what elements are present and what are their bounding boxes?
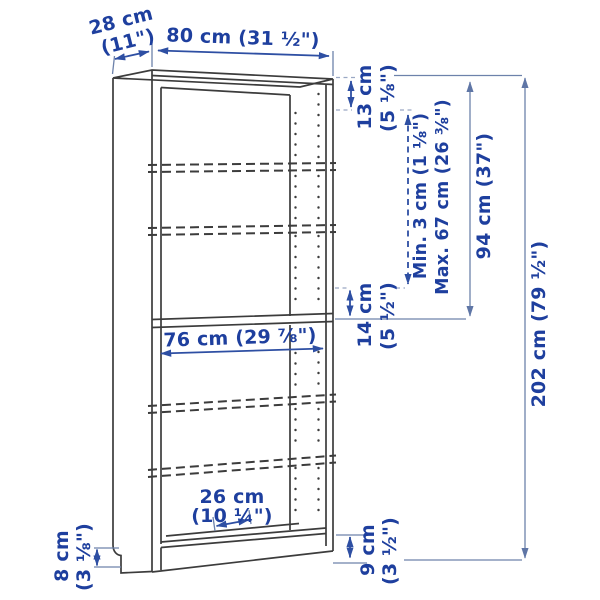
upper-section-label: 94 cm (37") xyxy=(473,133,495,260)
bookcase-base xyxy=(161,524,326,571)
base-side-label-cm: 8 cm xyxy=(51,530,73,582)
mid-gap-label-cm: 14 cm xyxy=(354,282,376,347)
top-gap-label-cm: 13 cm xyxy=(354,64,376,129)
interior-back-top-edge xyxy=(161,88,290,96)
shelf-adjustable-1 xyxy=(148,163,336,172)
diagram-canvas: 28 cm (11") 80 cm (31 ½") 13 cm (5 ⅛") M… xyxy=(0,0,600,600)
base-front-label-cm: 9 cm xyxy=(357,524,379,576)
base-side-leaders xyxy=(94,548,121,567)
bookcase-bottom-edge xyxy=(152,551,333,572)
top-gap-label-in: (5 ⅛") xyxy=(377,64,399,132)
shelf-adjustable-2 xyxy=(148,225,336,235)
bookcase-side-panel xyxy=(113,78,152,573)
shelf-adjustable-4 xyxy=(148,456,336,478)
shelf-adjustable-3 xyxy=(148,395,336,414)
shelf-max-label: Max. 67 cm (26 ⅜") xyxy=(433,99,453,295)
base-side-label-in: (3 ⅛") xyxy=(73,523,95,591)
width-label: 80 cm (31 ½") xyxy=(166,24,320,51)
inner-width-label: 76 cm (29 ⅞") xyxy=(163,324,317,351)
dimension-lines xyxy=(94,42,525,567)
measurement-labels: 28 cm (11") 80 cm (31 ½") 13 cm (5 ⅛") M… xyxy=(51,2,550,591)
shelf-depth-label-in: (10 ¼") xyxy=(191,505,272,527)
width-arrow xyxy=(158,51,329,57)
depth-extension-tick xyxy=(113,56,115,74)
base-front-label-in: (3 ½") xyxy=(379,517,401,585)
shelf-min-label: Min. 3 cm (1 ⅛") xyxy=(411,113,431,279)
bookcase-dimension-diagram: 28 cm (11") 80 cm (31 ½") 13 cm (5 ⅛") M… xyxy=(0,0,600,600)
mid-gap-label-in: (5 ½") xyxy=(377,282,399,350)
total-height-label: 202 cm (79 ½") xyxy=(528,241,550,408)
